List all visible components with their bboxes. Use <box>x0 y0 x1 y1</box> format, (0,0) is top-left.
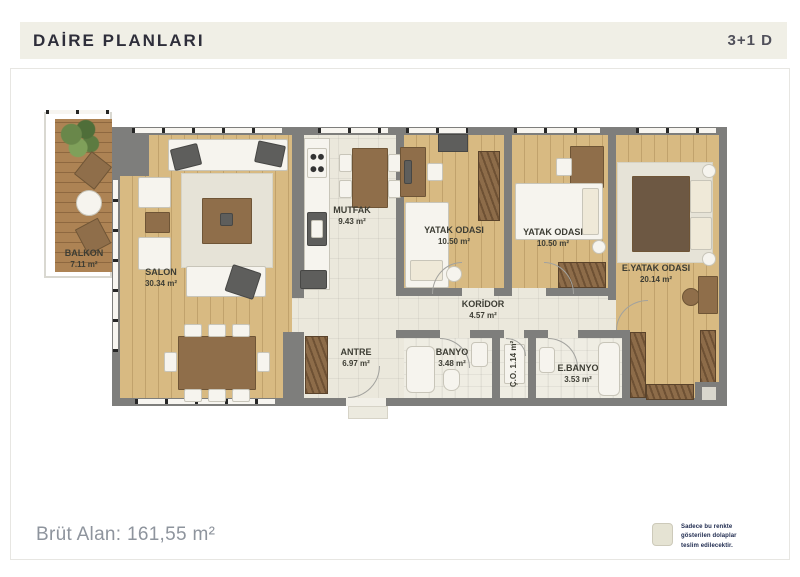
cooktop-icon <box>307 148 327 178</box>
wardrobe-l-right <box>700 330 716 384</box>
room-area: 10.50 m² <box>424 237 484 247</box>
room-area: 6.97 m² <box>341 359 372 369</box>
gross-area-label: Brüt Alan: 161,55 m² <box>36 524 215 546</box>
room-area: 7.11 m² <box>65 260 104 270</box>
page-title: DAİRE PLANLARI <box>33 31 205 51</box>
room-name: KORİDOR <box>462 299 505 311</box>
legend: Sadece bu renkte gösterilen dolaplar tes… <box>652 523 737 551</box>
room-name: YATAK ODASI <box>523 227 583 239</box>
desk <box>570 146 604 188</box>
label-e-yatak-odasi: E.YATAK ODASI20.14 m² <box>622 263 690 285</box>
side-table <box>145 212 170 233</box>
dining-chair <box>164 352 177 372</box>
label-banyo: BANYO3.48 m² <box>436 347 469 369</box>
wall-bedroom1-bedroom2 <box>504 134 512 296</box>
wall-bath-top2 <box>470 330 504 338</box>
window-bedroom1 <box>406 128 468 133</box>
label-koridor: KORİDOR4.57 m² <box>462 299 505 321</box>
dining-chair <box>208 389 226 402</box>
dresser <box>698 276 718 314</box>
room-name: YATAK ODASI <box>424 225 484 237</box>
room-name: MUTFAK <box>333 205 371 217</box>
wardrobe <box>478 151 500 221</box>
bathtub <box>406 346 435 393</box>
nightstand <box>702 252 716 266</box>
dining-chair <box>184 389 202 402</box>
table-decor <box>220 213 233 226</box>
kitchen-chair <box>339 180 352 198</box>
label-antre: ANTRE6.97 m² <box>341 347 372 369</box>
wall-bath-top3 <box>524 330 548 338</box>
room-name: E.BANYO <box>557 363 598 375</box>
sink-basin <box>311 220 323 238</box>
label-balkon: BALKON7.11 m² <box>65 248 104 270</box>
armchair <box>138 177 171 208</box>
legend-line: gösterilen dolaplar <box>681 532 737 541</box>
bathtub <box>598 342 620 396</box>
legend-note: Sadece bu renkte gösterilen dolaplar tes… <box>681 523 737 551</box>
window-salon <box>132 128 282 133</box>
dining-chair <box>257 352 270 372</box>
legend-line: teslim edilecektir. <box>681 542 737 551</box>
window-master <box>636 128 716 133</box>
nightstand <box>702 164 716 178</box>
pillow <box>582 188 599 235</box>
wall-bedroom1-bottom2 <box>494 288 512 296</box>
room-area: 30.34 m² <box>145 279 177 289</box>
armchair <box>138 237 171 270</box>
dining-chair <box>232 389 250 402</box>
label-yatak-odasi-1: YATAK ODASI10.50 m² <box>424 225 484 247</box>
wall-bath-top1 <box>396 330 440 338</box>
room-name: ANTRE <box>341 347 372 359</box>
room-area: 4.57 m² <box>462 311 505 321</box>
label-e-banyo: E.BANYO3.53 m² <box>557 363 598 385</box>
pillow <box>690 180 712 213</box>
column-salon-corner <box>119 134 149 176</box>
wall-co-ebanyo <box>528 338 536 398</box>
pillow <box>690 217 712 250</box>
balcony-round-table <box>76 190 102 216</box>
room-area: 3.53 m² <box>557 375 598 385</box>
wardrobe-l-left <box>630 332 646 398</box>
window-kitchen <box>318 128 388 133</box>
desk-chair <box>556 158 572 176</box>
kitchen-cabinet <box>300 270 327 289</box>
window-bedroom2 <box>514 128 600 133</box>
column-inset <box>702 387 716 400</box>
desk-chair <box>427 163 443 181</box>
dining-chair <box>208 324 226 337</box>
room-area: 10.50 m² <box>523 239 583 249</box>
window-salon-bottom <box>135 399 275 404</box>
room-name: Ç.O. <box>509 371 518 387</box>
room-area: 1.14 m² <box>509 341 518 369</box>
side-table-round <box>592 240 606 254</box>
kitchen-table <box>352 148 388 208</box>
dining-table <box>178 336 256 390</box>
label-mutfak: MUTFAK9.43 m² <box>333 205 371 227</box>
monitor-icon <box>404 160 412 184</box>
entry-door-gap <box>346 398 386 406</box>
wall-salon-antre <box>283 332 304 398</box>
kitchen-chair <box>339 154 352 172</box>
toilet <box>443 369 460 391</box>
room-name: E.YATAK ODASI <box>622 263 690 275</box>
room-name: BANYO <box>436 347 469 359</box>
window-salon-left <box>113 180 118 352</box>
balcony-window-band <box>46 110 110 114</box>
room-name: BALKON <box>65 248 104 260</box>
wall-banyo-co <box>492 338 500 398</box>
room-area: 20.14 m² <box>622 275 690 285</box>
legend-line: Sadece bu renkte <box>681 523 737 532</box>
wardrobe-l-bottom <box>646 384 694 400</box>
legend-color-swatch <box>652 523 673 546</box>
label-yatak-odasi-2: YATAK ODASI10.50 m² <box>523 227 583 249</box>
room-name: SALON <box>145 267 177 279</box>
page: DAİRE PLANLARI 3+1 D <box>0 0 800 577</box>
wall-right <box>719 127 727 406</box>
shaft-block <box>438 134 468 152</box>
dining-chair <box>232 324 250 337</box>
entry-step <box>348 406 388 419</box>
wall-bedroom2-master <box>608 134 616 300</box>
label-salon: SALON30.34 m² <box>145 267 177 289</box>
room-area: 9.43 m² <box>333 217 371 227</box>
dining-chair <box>184 324 202 337</box>
unit-type-label: 3+1 D <box>728 32 773 49</box>
wall-ebanyo-master <box>622 332 630 398</box>
label-co: Ç.O. 1.14 m² <box>509 341 519 387</box>
room-area: 3.48 m² <box>436 359 469 369</box>
header-bar: DAİRE PLANLARI 3+1 D <box>20 22 787 59</box>
washbasin <box>471 342 488 367</box>
entry-wardrobe <box>305 336 328 394</box>
bed-double <box>632 176 690 252</box>
